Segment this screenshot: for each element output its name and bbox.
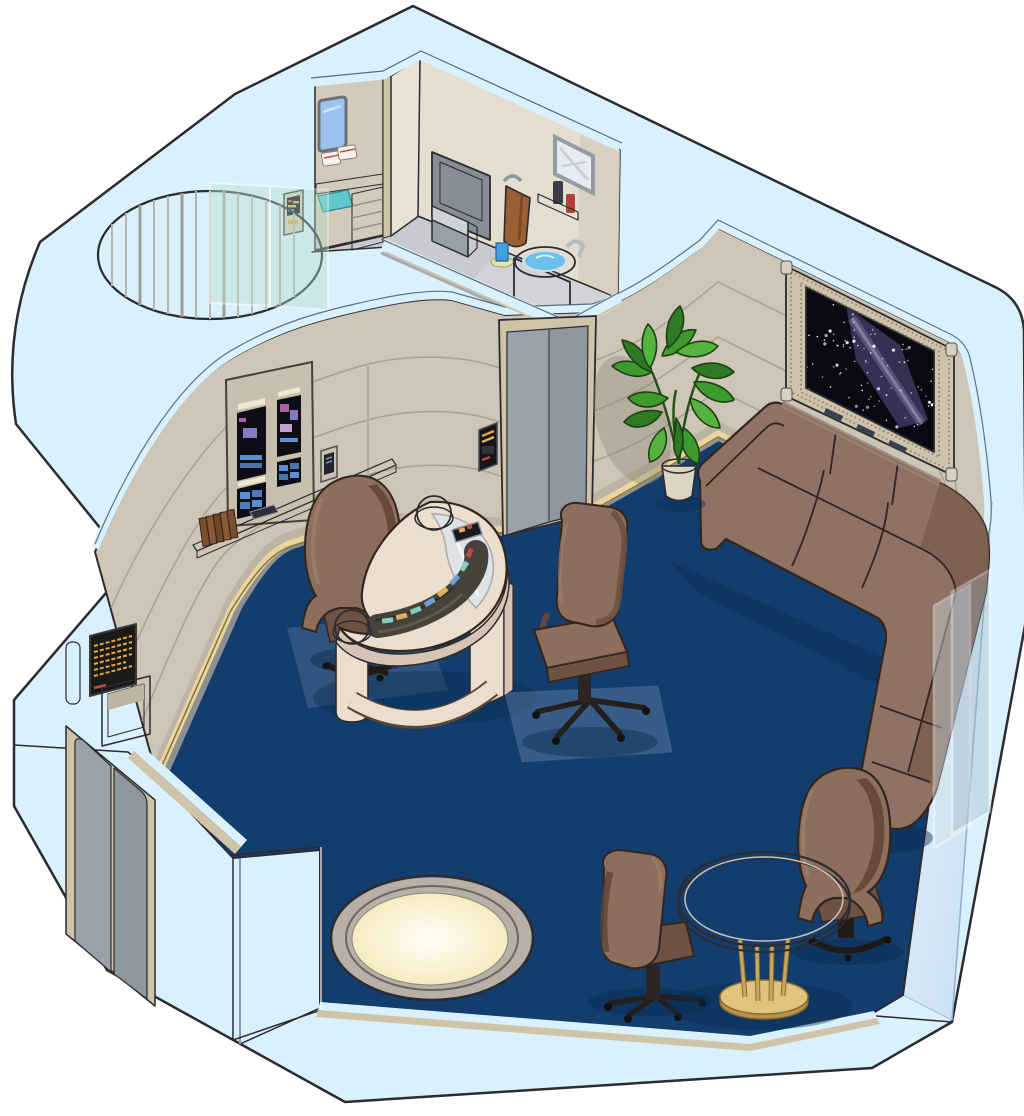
standing-tablet bbox=[321, 446, 337, 482]
star bbox=[863, 348, 865, 350]
star bbox=[855, 405, 858, 408]
star bbox=[825, 334, 828, 337]
table-base bbox=[720, 980, 808, 1014]
star bbox=[846, 341, 849, 344]
star bbox=[887, 365, 889, 367]
star bbox=[835, 364, 838, 367]
star bbox=[833, 366, 835, 368]
star bbox=[918, 386, 920, 388]
star bbox=[874, 333, 876, 335]
star bbox=[928, 405, 930, 407]
star bbox=[928, 401, 931, 404]
star bbox=[866, 406, 869, 409]
closet-window bbox=[319, 97, 346, 151]
star bbox=[908, 346, 911, 349]
shower-glass-panel-2 bbox=[270, 186, 328, 310]
star bbox=[812, 363, 814, 365]
star bbox=[865, 360, 867, 362]
star bbox=[854, 361, 856, 363]
star bbox=[843, 344, 845, 346]
door-control-panel bbox=[479, 423, 497, 471]
isometric-room-svg bbox=[0, 0, 1024, 1116]
glass-partition bbox=[934, 570, 990, 848]
star bbox=[843, 322, 845, 324]
star bbox=[886, 420, 888, 422]
star bbox=[870, 334, 872, 336]
star bbox=[906, 348, 908, 350]
star bbox=[904, 417, 906, 419]
wall-display-panel bbox=[226, 362, 314, 526]
star bbox=[853, 329, 855, 331]
star bbox=[872, 345, 875, 348]
door-panel-screen bbox=[482, 446, 494, 454]
star bbox=[872, 329, 874, 331]
star bbox=[824, 339, 826, 341]
star bbox=[853, 337, 855, 339]
star bbox=[848, 397, 850, 399]
star bbox=[817, 336, 819, 338]
star bbox=[867, 382, 869, 384]
closet-door-jamb bbox=[383, 76, 391, 238]
star bbox=[886, 394, 888, 396]
chair-shadow bbox=[522, 727, 658, 757]
star bbox=[878, 400, 880, 402]
bottle-dark bbox=[553, 181, 563, 204]
star bbox=[870, 396, 872, 398]
star bbox=[861, 390, 863, 392]
star bbox=[900, 390, 902, 392]
star bbox=[895, 425, 898, 428]
star bbox=[808, 335, 810, 337]
star bbox=[914, 426, 916, 428]
star bbox=[910, 392, 912, 394]
shower-glass-panel bbox=[210, 183, 270, 306]
star bbox=[877, 387, 880, 390]
cup bbox=[496, 243, 508, 261]
star bbox=[930, 380, 932, 382]
star bbox=[925, 395, 927, 397]
display-screen-4 bbox=[277, 457, 301, 487]
star bbox=[845, 368, 847, 370]
star bbox=[862, 409, 864, 411]
door-left-panel bbox=[507, 329, 549, 535]
star bbox=[907, 360, 909, 362]
star bbox=[822, 376, 824, 378]
star bbox=[870, 352, 872, 354]
star bbox=[833, 304, 835, 306]
star bbox=[852, 340, 855, 343]
chair-stem bbox=[646, 966, 660, 1000]
bathroom-wall-mid bbox=[391, 58, 420, 236]
star bbox=[902, 349, 904, 351]
star bbox=[829, 329, 832, 332]
exterior-door-left-panel bbox=[75, 739, 111, 972]
star bbox=[857, 345, 859, 347]
star bbox=[921, 389, 923, 391]
star bbox=[833, 340, 835, 342]
star bbox=[868, 399, 870, 401]
star bbox=[849, 347, 851, 349]
star bbox=[902, 344, 904, 346]
star bbox=[836, 345, 838, 347]
star bbox=[852, 313, 854, 315]
star bbox=[830, 386, 832, 388]
star bbox=[892, 349, 895, 352]
star bbox=[882, 358, 884, 360]
exterior-door-right-panel bbox=[114, 768, 147, 999]
floor-light bbox=[331, 876, 533, 1000]
star bbox=[904, 361, 906, 363]
star bbox=[845, 340, 847, 342]
star bbox=[899, 361, 901, 363]
star bbox=[874, 406, 876, 408]
star bbox=[890, 387, 892, 389]
door-right-panel bbox=[549, 326, 588, 522]
star bbox=[840, 372, 842, 374]
star bbox=[823, 342, 826, 345]
star bbox=[867, 372, 869, 374]
illustration-canvas bbox=[0, 0, 1024, 1116]
star bbox=[861, 385, 863, 387]
star bbox=[843, 346, 845, 348]
star bbox=[853, 322, 855, 324]
star bbox=[881, 376, 883, 378]
glass-pane-2 bbox=[952, 570, 990, 834]
star bbox=[917, 424, 919, 426]
star bbox=[833, 334, 835, 336]
